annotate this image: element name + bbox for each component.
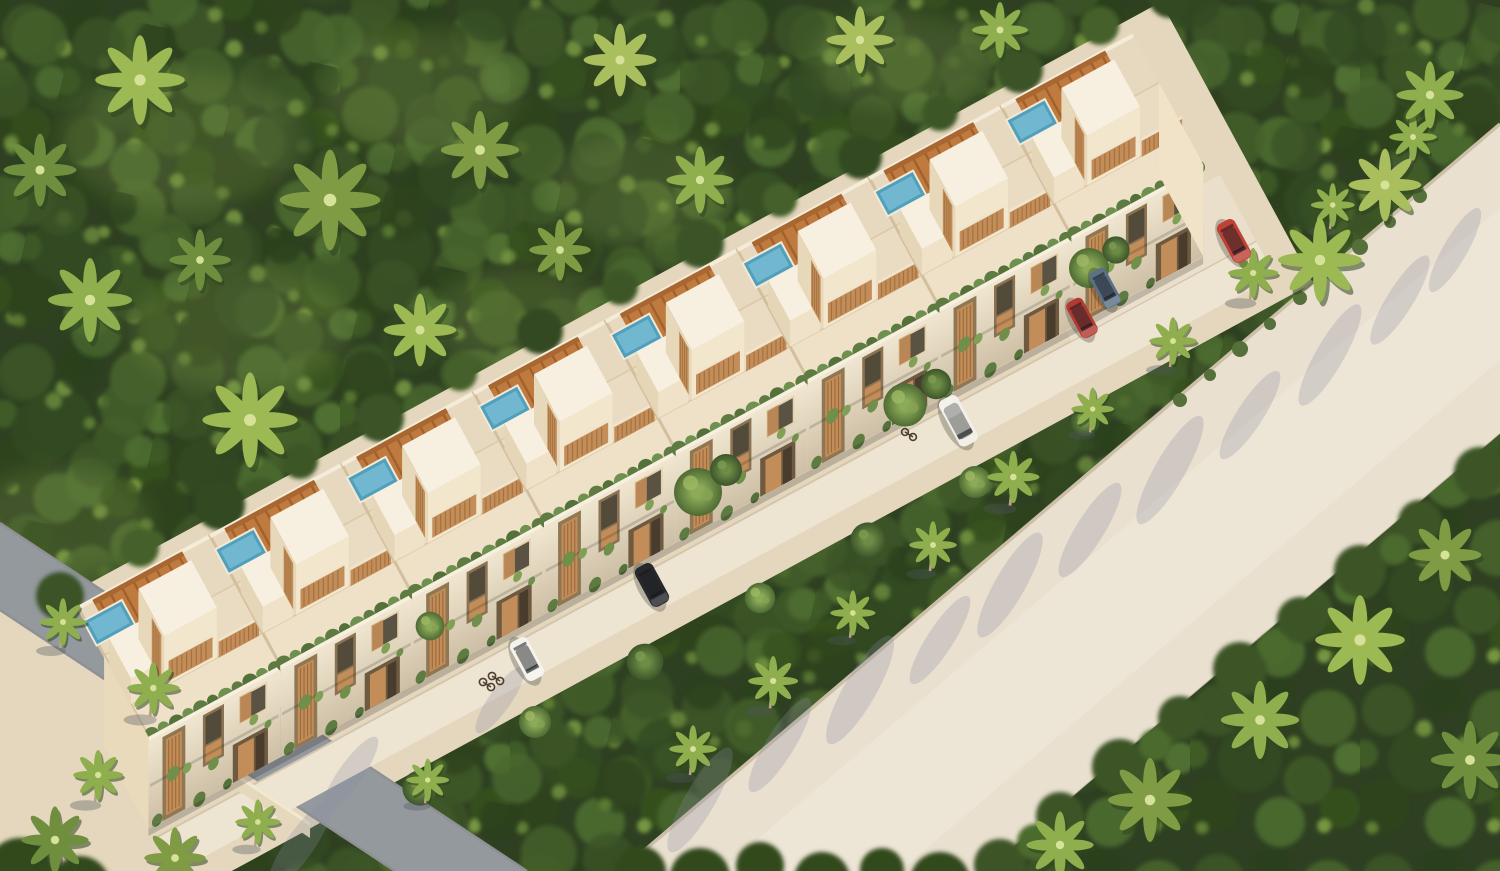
- strip-tree: [959, 466, 991, 498]
- aerial-render-stage: [0, 0, 1500, 871]
- strip-tree: [850, 522, 885, 557]
- courtyard-tree: [1102, 236, 1129, 263]
- courtyard-tree: [710, 454, 742, 486]
- courtyard-tree: [883, 383, 926, 426]
- aerial-render: [0, 0, 1500, 871]
- strip-tree: [627, 644, 664, 681]
- courtyard-tree: [416, 612, 445, 641]
- strip-tree: [519, 706, 551, 738]
- courtyard-tree: [921, 369, 951, 399]
- strip-tree: [745, 583, 775, 613]
